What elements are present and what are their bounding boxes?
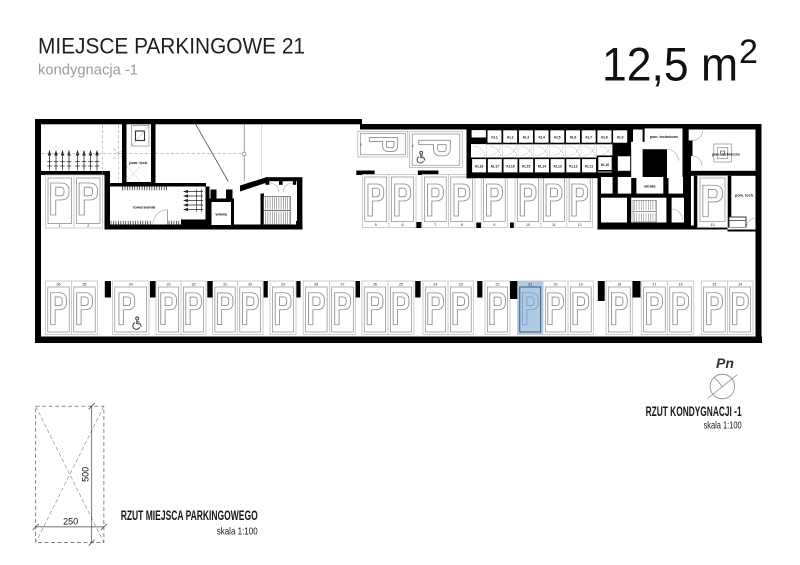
svg-text:9: 9: [493, 223, 495, 227]
svg-text:winda: winda: [643, 183, 656, 188]
svg-text:winda: winda: [215, 212, 228, 217]
svg-text:2: 2: [739, 33, 758, 71]
svg-text:31: 31: [223, 283, 227, 287]
svg-text:1: 1: [59, 224, 61, 228]
svg-text:KL3: KL3: [523, 135, 530, 139]
svg-text:KL5: KL5: [554, 135, 561, 139]
svg-text:500: 500: [81, 467, 91, 482]
svg-text:29: 29: [281, 283, 285, 287]
svg-text:Pn: Pn: [716, 355, 734, 371]
svg-text:KL4: KL4: [538, 135, 545, 139]
svg-text:25: 25: [399, 283, 403, 287]
svg-text:KL10: KL10: [601, 163, 609, 167]
svg-text:17: 17: [652, 283, 656, 287]
svg-text:22: 22: [496, 283, 500, 287]
svg-text:28: 28: [314, 283, 318, 287]
svg-text:KL17: KL17: [491, 165, 499, 169]
svg-text:13: 13: [711, 223, 715, 227]
svg-text:rowerownia: rowerownia: [133, 204, 156, 209]
svg-text:8: 8: [461, 223, 463, 227]
svg-text:kondygnacja -1: kondygnacja -1: [38, 63, 138, 79]
svg-text:pom. tech.: pom. tech.: [735, 194, 754, 198]
svg-text:KL18: KL18: [475, 165, 483, 169]
svg-text:30: 30: [248, 283, 252, 287]
svg-text:KL11: KL11: [585, 165, 593, 169]
svg-text:KL1: KL1: [491, 135, 498, 139]
svg-text:10: 10: [526, 223, 530, 227]
svg-text:33: 33: [167, 283, 171, 287]
svg-text:250: 250: [63, 516, 78, 526]
svg-text:KL2: KL2: [507, 135, 514, 139]
svg-text:27: 27: [341, 283, 345, 287]
svg-text:KL12: KL12: [569, 165, 577, 169]
svg-text:32: 32: [192, 283, 196, 287]
svg-text:2: 2: [87, 224, 89, 228]
svg-text:11: 11: [552, 223, 556, 227]
svg-text:34: 34: [129, 283, 133, 287]
svg-text:RZUT KONDYGNACJI -1: RZUT KONDYGNACJI -1: [646, 404, 742, 419]
svg-text:RZUT MIEJSCA PARKINGOWEGO: RZUT MIEJSCA PARKINGOWEGO: [121, 508, 258, 523]
svg-text:KL8: KL8: [601, 135, 608, 139]
svg-text:18: 18: [617, 283, 621, 287]
svg-text:12,5 m: 12,5 m: [602, 39, 738, 92]
svg-text:skala 1:100: skala 1:100: [217, 526, 258, 538]
svg-text:15: 15: [712, 283, 716, 287]
svg-text:skala 1:100: skala 1:100: [704, 421, 742, 432]
svg-text:KL9: KL9: [617, 135, 624, 139]
svg-text:KL14: KL14: [538, 165, 546, 169]
svg-text:26: 26: [373, 283, 377, 287]
svg-text:35: 35: [83, 283, 87, 287]
svg-text:14: 14: [738, 283, 742, 287]
svg-text:KL15: KL15: [522, 165, 530, 169]
svg-text:7: 7: [434, 223, 436, 227]
svg-text:MIEJSCE PARKINGOWE 21: MIEJSCE PARKINGOWE 21: [38, 34, 305, 59]
svg-text:4: 4: [412, 144, 414, 148]
svg-text:pom. techniczne: pom. techniczne: [712, 152, 740, 156]
svg-text:36: 36: [57, 283, 61, 287]
svg-text:pom. techniczne: pom. techniczne: [650, 135, 678, 139]
svg-text:KL13: KL13: [554, 165, 562, 169]
svg-text:pom. tech.: pom. tech.: [129, 161, 148, 165]
svg-text:12: 12: [578, 223, 582, 227]
svg-text:5: 5: [375, 223, 377, 227]
svg-text:24: 24: [434, 283, 438, 287]
svg-text:16: 16: [679, 283, 683, 287]
svg-text:19: 19: [579, 283, 583, 287]
svg-text:KL7: KL7: [586, 135, 593, 139]
svg-text:21: 21: [528, 283, 532, 287]
svg-text:KL16: KL16: [506, 165, 514, 169]
svg-text:20: 20: [554, 283, 558, 287]
svg-text:3: 3: [360, 143, 362, 147]
svg-text:6: 6: [402, 223, 404, 227]
svg-text:23: 23: [459, 283, 463, 287]
svg-text:KL6: KL6: [570, 135, 577, 139]
